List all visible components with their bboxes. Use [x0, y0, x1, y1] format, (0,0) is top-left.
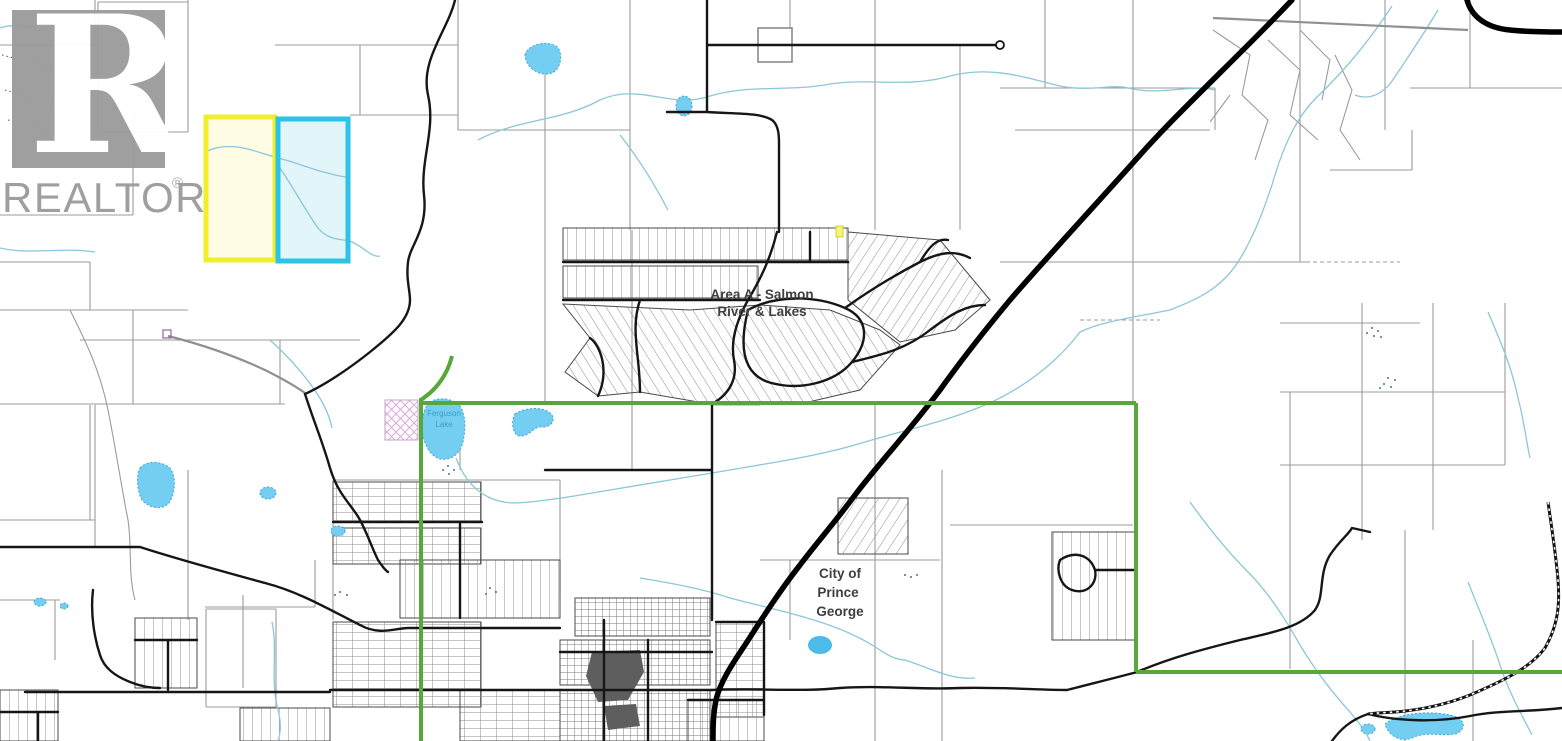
ferguson-lake-label-line2: Lake — [435, 420, 453, 429]
realtor-logo-letter: R — [28, 0, 188, 197]
highlighted-parcel-yellow-fill — [206, 117, 275, 260]
city-label-line3: George — [816, 604, 864, 619]
ferguson-lake-label-line1: Ferguson — [427, 409, 461, 418]
city-label-line1: City of — [819, 566, 862, 581]
bright-pond — [808, 636, 832, 654]
map-canvas[interactable]: Area A - Salmon River & Lakes City of Pr… — [0, 0, 1562, 741]
area-a-label-line1: Area A - Salmon — [710, 287, 813, 302]
pink-hatch-area — [385, 400, 418, 440]
small-yellow-lot[interactable] — [836, 226, 843, 237]
bottom-left-lake — [138, 462, 175, 507]
area-a-label-line2: River & Lakes — [717, 304, 806, 319]
registered-trademark-icon: ® — [172, 175, 183, 192]
realtor-watermark: R REALTOR ® — [2, 0, 207, 221]
city-label-line2: Prince — [817, 585, 859, 600]
